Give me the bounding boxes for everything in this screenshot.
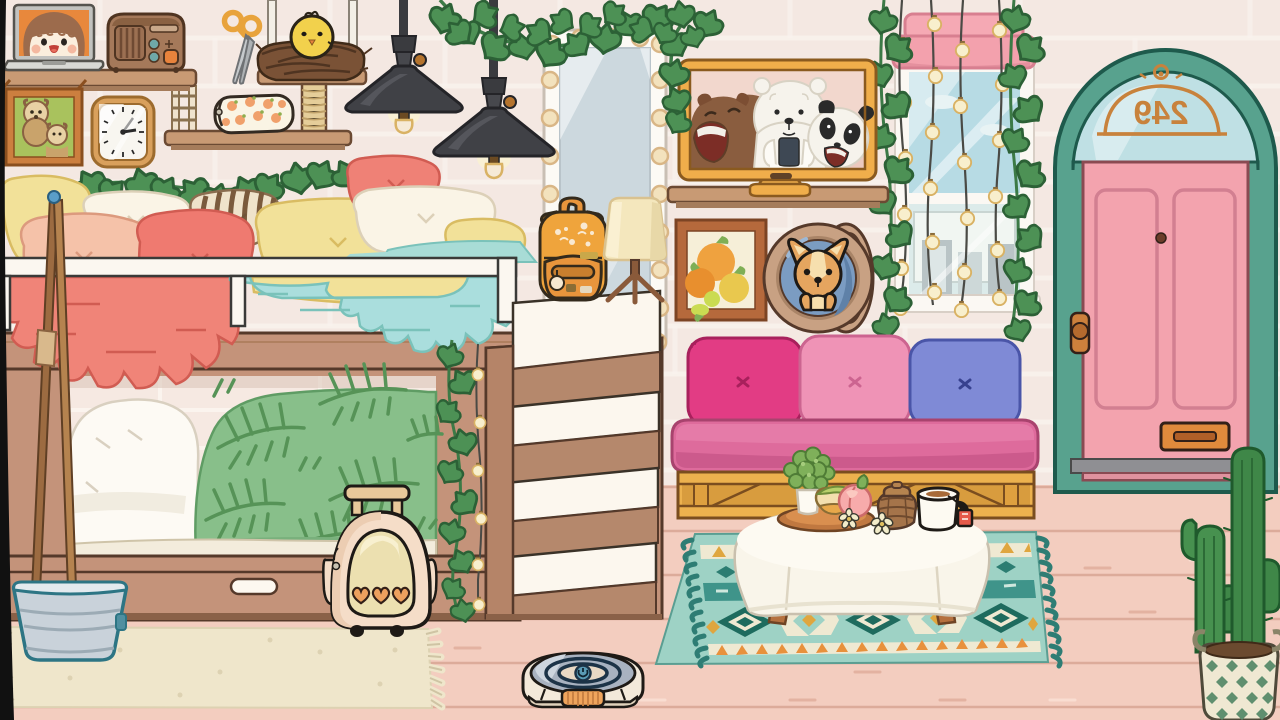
svg-text:249: 249 xyxy=(1133,94,1188,131)
